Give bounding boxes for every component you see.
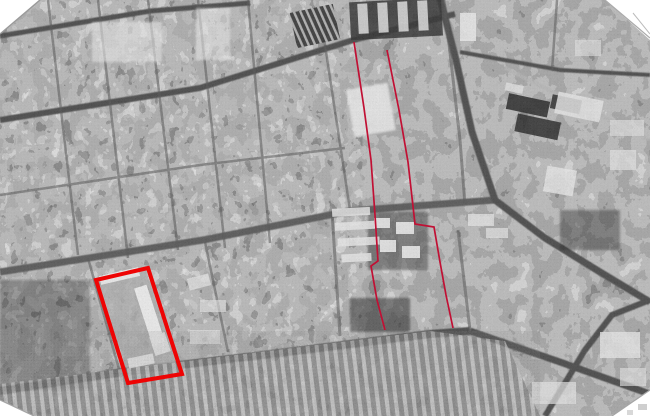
aerial-photo-canvas [0,0,650,416]
corner-speck [627,410,633,415]
aerial-photo [0,0,650,416]
film-grain [0,0,650,416]
corner-speck [638,404,647,410]
